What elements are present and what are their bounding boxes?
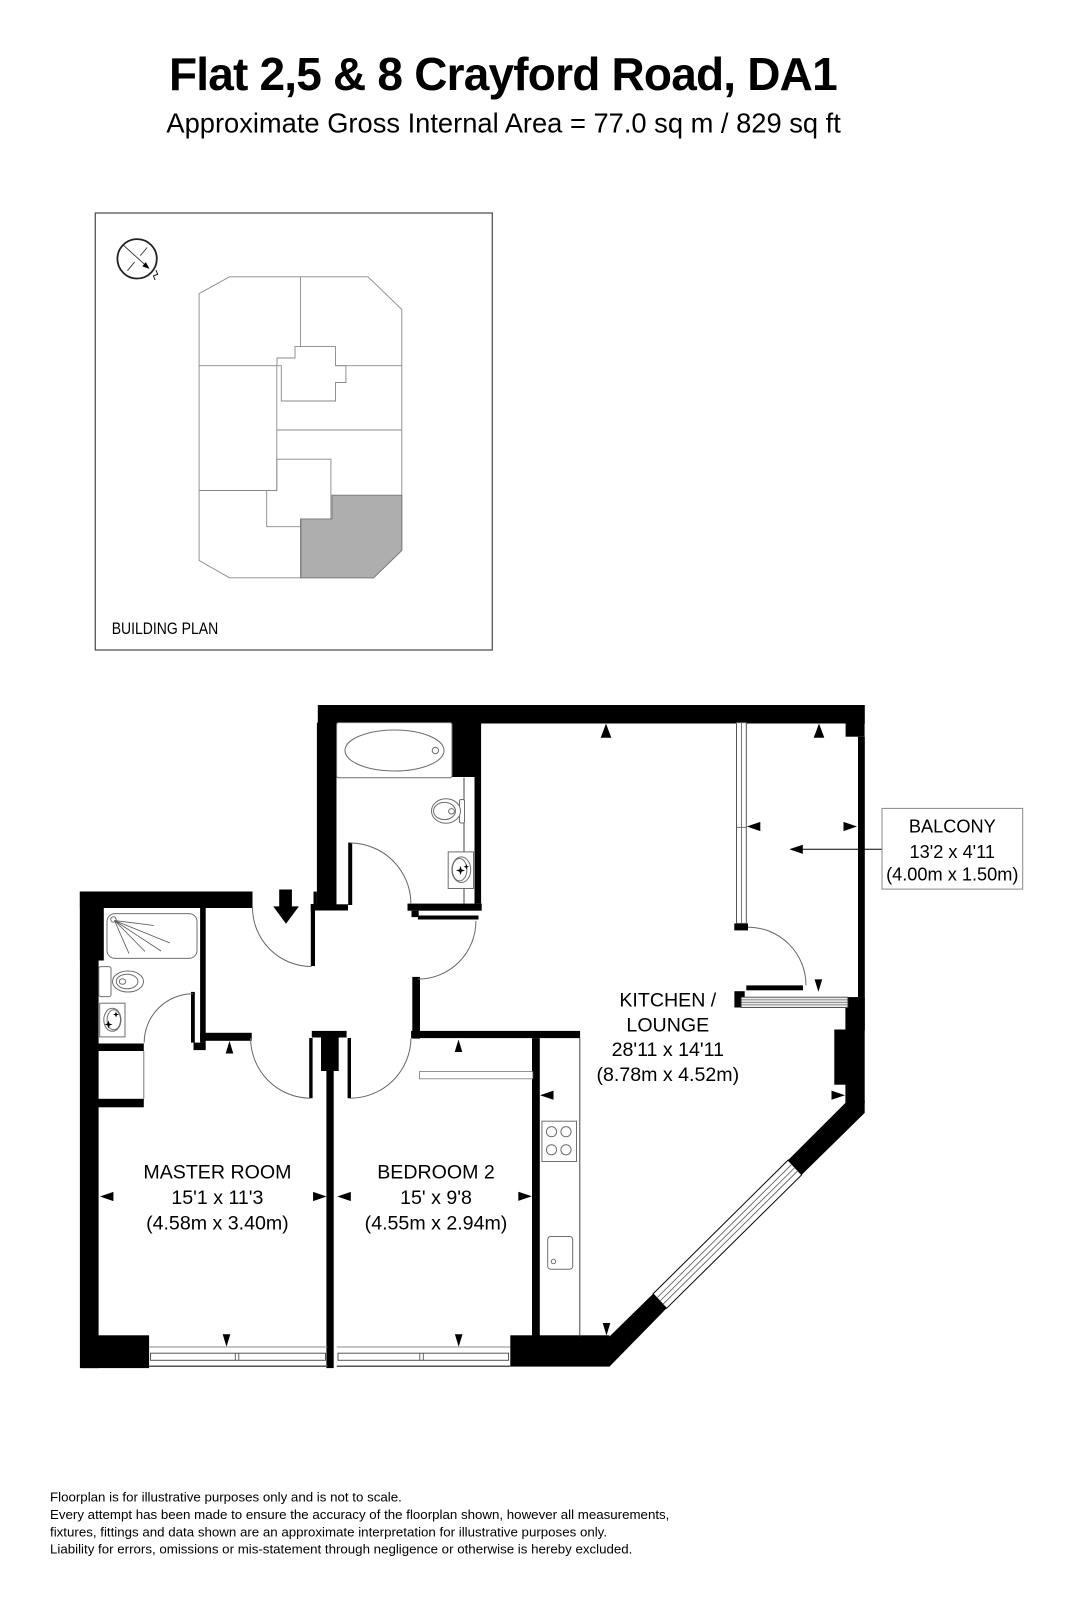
svg-text:BUILDING PLAN: BUILDING PLAN	[112, 620, 219, 638]
svg-text:13'2 x 4'11: 13'2 x 4'11	[910, 842, 995, 862]
svg-text:fixtures, fittings and data sh: fixtures, fittings and data shown are an…	[50, 1525, 607, 1540]
svg-text:Flat 2,5 & 8 Crayford Road, DA: Flat 2,5 & 8 Crayford Road, DA1	[169, 48, 837, 100]
svg-text:MASTER ROOM: MASTER ROOM	[143, 1162, 291, 1184]
svg-text:15' x 9'8: 15' x 9'8	[400, 1187, 472, 1209]
svg-text:LOUNGE: LOUNGE	[626, 1014, 709, 1036]
svg-text:(8.78m x 4.52m): (8.78m x 4.52m)	[596, 1064, 739, 1086]
svg-text:Floorplan is for illustrative: Floorplan is for illustrative purposes o…	[50, 1489, 402, 1504]
svg-text:(4.00m x 1.50m): (4.00m x 1.50m)	[886, 865, 1018, 885]
svg-text:28'11 x 14'11: 28'11 x 14'11	[612, 1039, 724, 1061]
svg-text:(4.58m x 3.40m): (4.58m x 3.40m)	[146, 1212, 289, 1234]
svg-text:15'1 x 11'3: 15'1 x 11'3	[171, 1187, 263, 1209]
svg-text:BEDROOM 2: BEDROOM 2	[377, 1162, 495, 1184]
svg-text:Every attempt has been made to: Every attempt has been made to ensure th…	[50, 1507, 669, 1522]
svg-text:Approximate Gross Internal Are: Approximate Gross Internal Area = 77.0 s…	[166, 107, 841, 138]
svg-text:Liability for errors, omission: Liability for errors, omissions or mis-s…	[50, 1542, 632, 1557]
svg-text:BALCONY: BALCONY	[909, 817, 996, 837]
svg-text:KITCHEN /: KITCHEN /	[619, 990, 716, 1012]
svg-text:(4.55m x 2.94m): (4.55m x 2.94m)	[365, 1212, 508, 1234]
